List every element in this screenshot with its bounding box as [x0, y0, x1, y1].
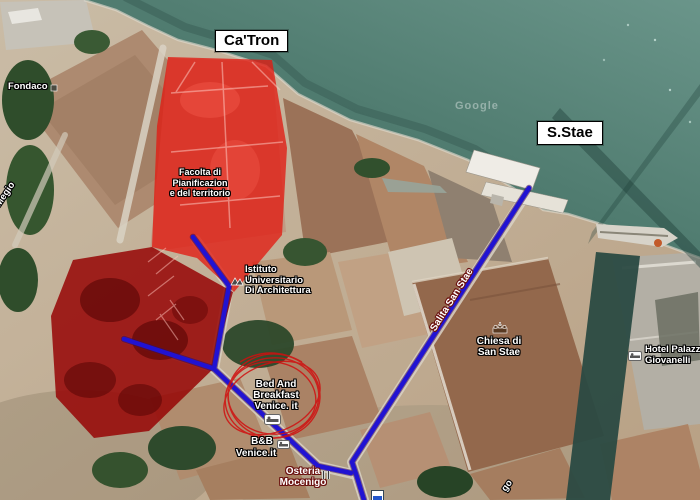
- label-fondaco: Fondaco: [8, 82, 48, 93]
- bed-icon: [628, 351, 642, 361]
- label-istituto: Istituto Universitario Di Architettura: [245, 265, 311, 297]
- bed-icon: [277, 440, 290, 449]
- label-bed-breakfast: Bed And Breakfast Venice. it: [253, 379, 299, 412]
- church-icon: [492, 322, 508, 334]
- vaporetto-stop-icon: [371, 490, 384, 500]
- marker-catron-label: Ca'Tron: [224, 32, 279, 49]
- marker-sstae: S.Stae: [537, 121, 603, 145]
- label-bnb-line2: Venice.it: [236, 448, 277, 459]
- label-bnb-line1: B&B: [251, 436, 273, 447]
- bed-icon: [264, 414, 281, 425]
- marker-sstae-label: S.Stae: [547, 124, 593, 141]
- label-chiesa: Chiesa di San Stae: [477, 336, 521, 358]
- marker-catron: Ca'Tron: [215, 30, 288, 52]
- google-watermark: Google: [455, 100, 499, 112]
- university-icon: [230, 276, 244, 286]
- landmark-icon: [50, 84, 58, 92]
- restaurant-icon: [320, 470, 332, 480]
- label-hotel-giovanelli: Hotel Palazzo Giovanelli: [645, 345, 700, 366]
- satellite-map[interactable]: Google Ca'Tron S.Stae Fondaco Calle Megi…: [0, 0, 700, 500]
- label-facolta: Facolta di Pianificazion e del territori…: [170, 167, 231, 199]
- aerial-photo: [0, 0, 700, 500]
